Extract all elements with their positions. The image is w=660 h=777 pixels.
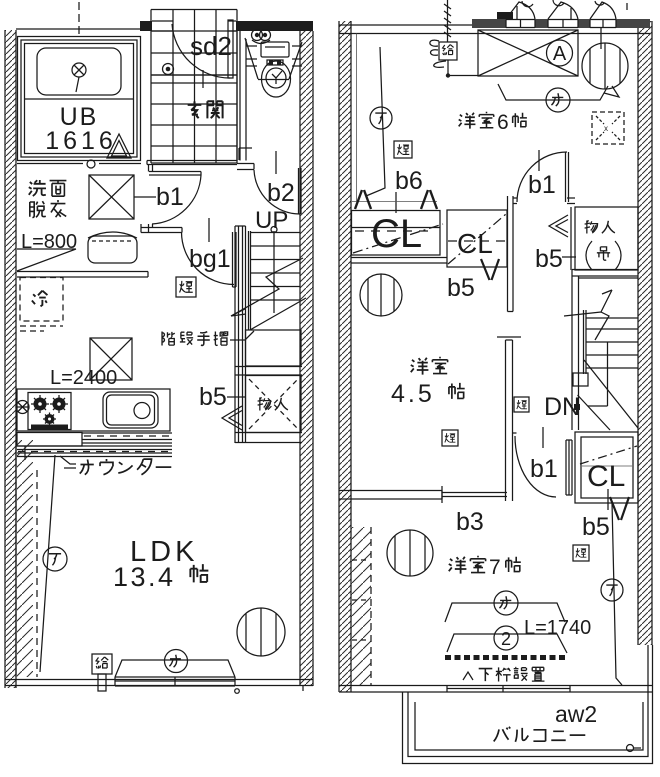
svg-text:2: 2 (501, 629, 511, 649)
svg-text:b2: b2 (267, 179, 295, 207)
svg-text:L=2400: L=2400 (50, 367, 117, 389)
svg-text:b1: b1 (156, 183, 184, 211)
svg-text:CL: CL (371, 212, 422, 256)
svg-text:6: 6 (497, 111, 509, 134)
svg-text:b1: b1 (528, 171, 556, 199)
svg-text:CL: CL (457, 228, 493, 259)
svg-text:7: 7 (489, 556, 501, 579)
svg-text:CL: CL (587, 460, 625, 493)
svg-text:b5: b5 (582, 513, 610, 541)
svg-text:sd2: sd2 (190, 31, 232, 61)
svg-text:1616: 1616 (45, 127, 117, 155)
svg-text:b5: b5 (535, 245, 563, 273)
svg-text:L=1740: L=1740 (524, 617, 591, 639)
svg-text:A: A (553, 43, 567, 65)
svg-text:b5: b5 (199, 383, 227, 411)
svg-text:4.5: 4.5 (391, 380, 435, 408)
svg-text:UP: UP (255, 207, 288, 234)
svg-text:b6: b6 (395, 167, 423, 195)
svg-text:b3: b3 (456, 508, 484, 536)
svg-text:aw2: aw2 (555, 701, 597, 727)
svg-text:x: x (604, 124, 608, 133)
svg-text:b5: b5 (447, 274, 475, 302)
svg-text:L=800: L=800 (21, 231, 77, 253)
svg-text:b1: b1 (530, 455, 558, 483)
svg-text:bg1: bg1 (189, 245, 231, 273)
svg-text:13.4: 13.4 (113, 562, 176, 592)
